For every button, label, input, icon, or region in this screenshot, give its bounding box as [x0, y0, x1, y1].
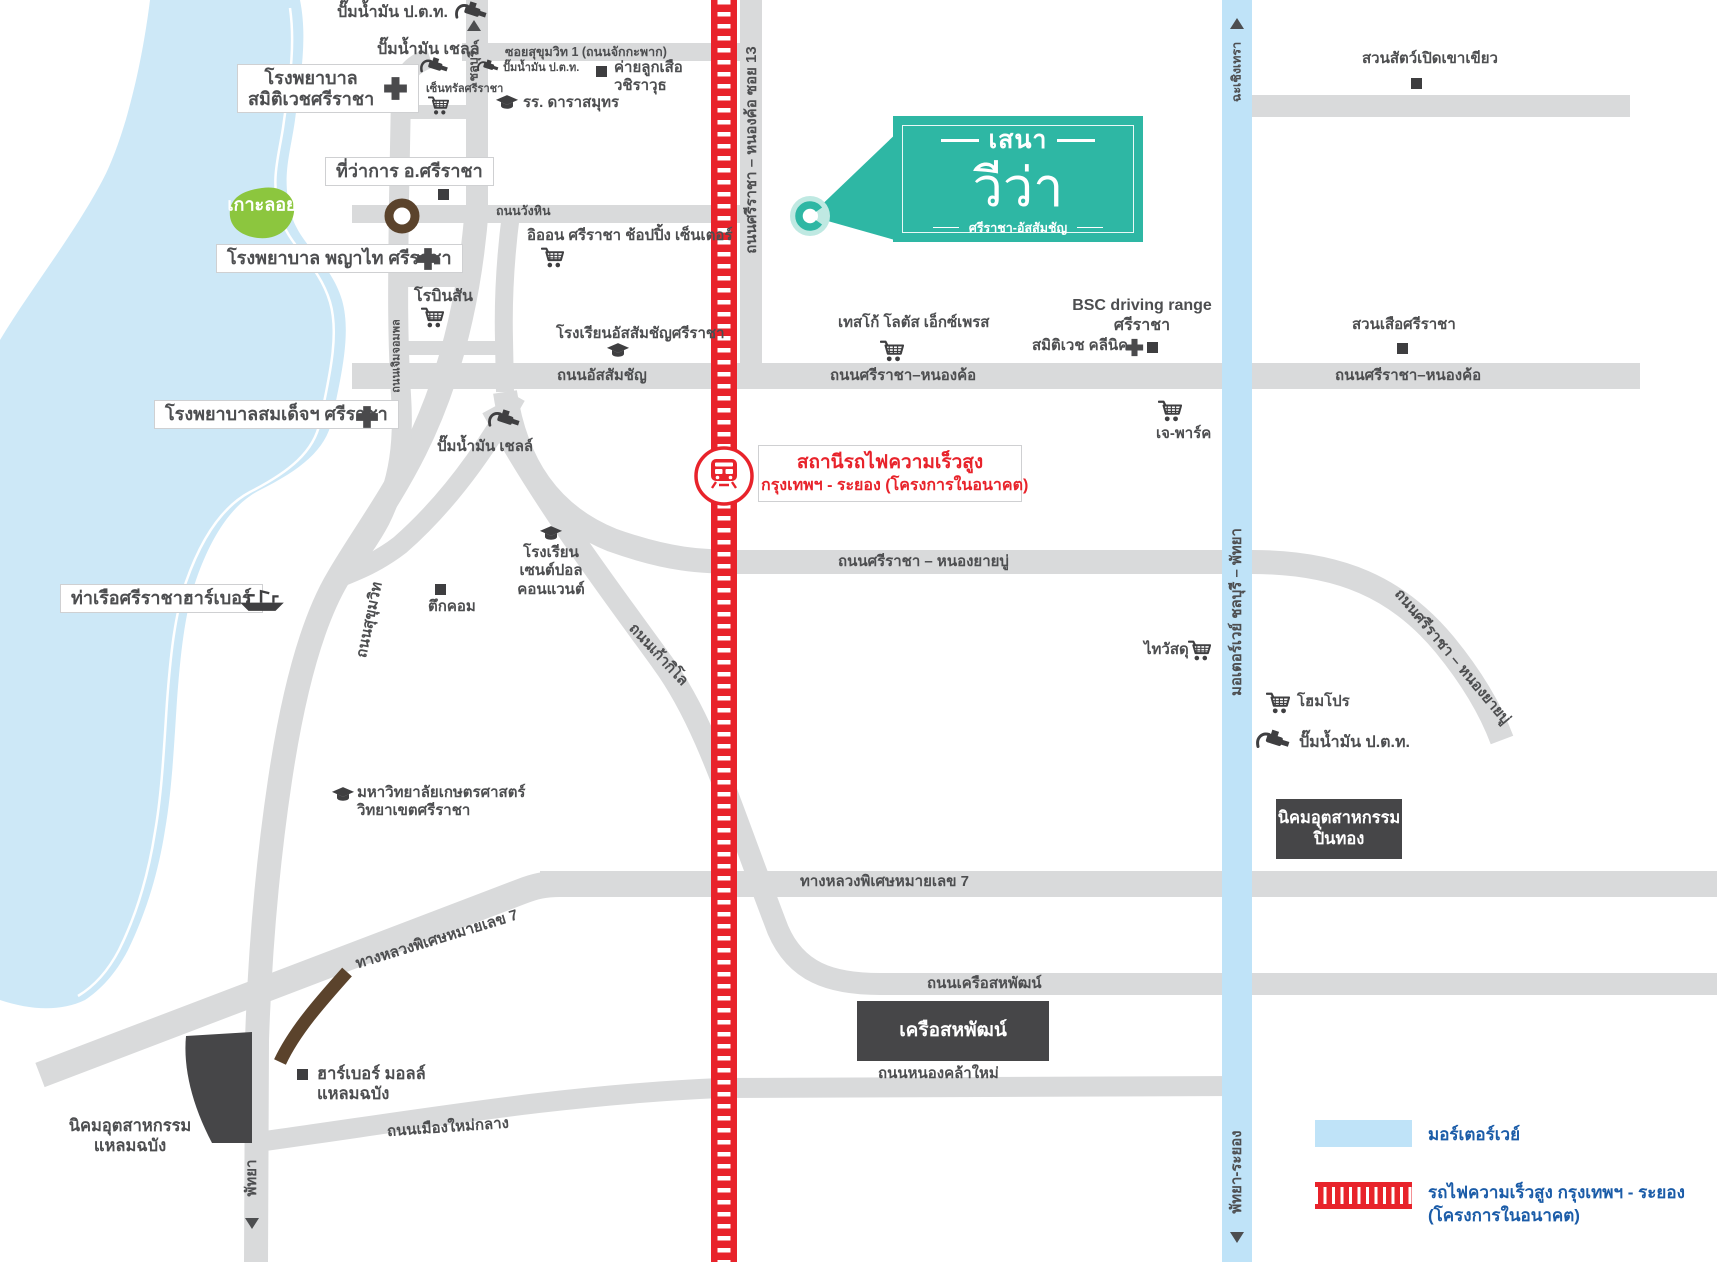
- motorway-band-label: มอเตอร์เวย์ ชลบุรี – พัทยา: [1228, 528, 1246, 696]
- road-sriracha-nongkho-right: ถนนศรีราชา–หนองค้อ: [1335, 367, 1481, 385]
- shopping-cart-icon: [428, 95, 449, 116]
- jpark-label: เจ-พาร์ค: [1156, 425, 1211, 443]
- samitivej-hospital-text: โรงพยาบาล สมิติเวชศรีราชา: [248, 68, 374, 109]
- scout-camp-label: ค่ายลูกเสือ วชิราวุธ: [614, 59, 683, 96]
- marker-square: [1147, 342, 1158, 353]
- logo-brand: เสนา: [989, 120, 1048, 160]
- shopping-cart-icon: [1188, 639, 1211, 662]
- bsc-line1: BSC driving range: [1072, 297, 1212, 314]
- marker-square: [297, 1069, 308, 1080]
- road-nong-yai-bu: ถนนศรีราชา – หนองยายบู่: [838, 553, 1009, 571]
- st-paul-line2: เซนต์ปอล: [519, 562, 582, 579]
- saha-group-box: เครือสหพัฒน์: [857, 1001, 1049, 1061]
- hospital-cross-icon: [1125, 338, 1144, 357]
- legend-hsr-line2: (โครงการในอนาคต): [1428, 1206, 1580, 1225]
- kasetsart-label: มหาวิทยาลัยเกษตรศาสตร์ วิทยาเขตศรีราชา: [357, 784, 526, 821]
- samitivej-line2: สมิติเวชศรีราชา: [248, 89, 374, 109]
- khao-kheow-zoo-label: สวนสัตว์เปิดเขาเขียว: [1362, 50, 1498, 68]
- pier-ship-icon: [238, 587, 286, 614]
- road-khrue-sahapat: ถนนเครือสหพัฒน์: [927, 975, 1042, 993]
- samitivej-hospital-box: โรงพยาบาล สมิติเวชศรีราชา: [237, 64, 419, 113]
- sea-water: [0, 0, 346, 1008]
- direction-pattaya: พัทยา: [243, 1160, 261, 1197]
- school-cap-icon: [539, 525, 563, 542]
- aeon-label: อิออน ศรีราชา ช้อปปิ้ง เซ็นเตอร์: [527, 227, 733, 245]
- hospital-cross-icon: [355, 405, 379, 429]
- district-office-text: ที่ว่าการ อ.ศรีราชา: [336, 161, 483, 182]
- school-cap-icon: [495, 94, 519, 111]
- hsr-line: [711, 0, 737, 1262]
- harbor-mall-label: ฮาร์เบอร์ มอลล์ แหลมฉบัง: [317, 1064, 426, 1104]
- fuel-nozzle-icon: [420, 57, 450, 77]
- legend-hsr-label: รถไฟความเร็วสูง กรุงเทพฯ - ระยอง (โครงกา…: [1428, 1182, 1685, 1228]
- hsr-station-label: สถานีรถไฟความเร็วสูง กรุงเทพฯ - ระยอง (โ…: [758, 445, 1022, 502]
- scout-camp-line2: วชิราวุธ: [614, 77, 667, 94]
- fuel-nozzle-icon: [477, 59, 500, 75]
- school-cap-icon: [331, 786, 355, 803]
- logo-line: [1057, 139, 1095, 142]
- bsc-label: BSC driving range ศรีราชา: [1058, 296, 1226, 335]
- shopping-cart-icon: [541, 246, 564, 269]
- legend-motorway-swatch: [1315, 1120, 1412, 1147]
- ptt-soi1-label: ปั๊มน้ำมัน ป.ต.ท.: [503, 62, 579, 75]
- legend-hsr-swatch: [1315, 1182, 1412, 1209]
- road-assumption: ถนนอัสสัมชัญ: [557, 367, 647, 385]
- harbor-pier-box: ท่าเรือศรีราชาฮาร์เบอร์: [60, 584, 263, 613]
- pinthong-line1: นิคมอุตสาหกรรม: [1276, 808, 1402, 829]
- samitivej-clinic-label: สมิติเวช คลีนิค: [1032, 337, 1128, 355]
- direction-chachoengsao: ฉะเชิงเทรา: [1229, 42, 1244, 102]
- tesco-label: เทสโก้ โลตัส เอ็กซ์เพรส: [838, 314, 989, 332]
- logo-line: [933, 227, 959, 229]
- road-soi13: ถนนศรีราชา – หนองค้อ ซอย 13: [743, 46, 761, 253]
- hospital-cross-icon: [383, 76, 408, 101]
- fuel-nozzle-icon: [1256, 729, 1292, 754]
- bsc-line2: ศรีราชา: [1114, 317, 1170, 334]
- laem-chabang-line1: นิคมอุตสาหกรรม: [69, 1117, 192, 1135]
- st-paul-line1: โรงเรียน: [523, 544, 579, 561]
- scout-camp-line1: ค่ายลูกเสือ: [614, 59, 683, 76]
- robinson-label: โรบินสัน: [414, 287, 473, 307]
- road-jermjompol: ถนนเจิมจอมพล: [390, 319, 403, 392]
- harbor-mall-line2: แหลมฉบัง: [317, 1085, 389, 1103]
- assumption-school-label: โรงเรียนอัสสัมชัญศรีราชา: [556, 325, 725, 343]
- logo-subtitle: ศรีราชา-อัสสัมชัญ: [969, 218, 1067, 238]
- district-office-box: ที่ว่าการ อ.ศรีราชา: [325, 157, 494, 186]
- samitivej-line1: โรงพยาบาล: [265, 68, 358, 88]
- marker-square: [596, 66, 607, 77]
- shopping-cart-icon: [421, 306, 444, 329]
- arrow-up-icon: [1230, 18, 1244, 29]
- road-soi-sukhumvit1: ซอยสุขุมวิท 1 (ถนนจักกะพาก): [505, 45, 667, 60]
- hospital-cross-icon: [416, 247, 440, 271]
- tiger-zoo-label: สวนเสือศรีราชา: [1352, 316, 1456, 334]
- direction-pattaya-rayong: พัทยา-ระยอง: [1228, 1130, 1246, 1213]
- shopping-cart-icon: [1158, 399, 1182, 423]
- koh-loi-label: เกาะลอย: [227, 190, 296, 219]
- pinthong-estate-box: นิคมอุตสาหกรรม ปิ่นทอง: [1276, 799, 1402, 859]
- shopping-cart-icon: [1266, 691, 1290, 715]
- harbor-pier-text: ท่าเรือศรีราชาฮาร์เบอร์: [71, 588, 252, 609]
- saha-group-text: เครือสหพัฒน์: [857, 1019, 1049, 1043]
- ptt-east-label: ปั๊มน้ำมัน ป.ต.ท.: [1299, 733, 1410, 753]
- laem-chabang-estate-label: นิคมอุตสาหกรรม แหลมฉบัง: [66, 1116, 194, 1156]
- homepro-label: โฮมโปร: [1297, 693, 1350, 711]
- logo-line: [1077, 227, 1103, 229]
- location-map: เกาะลอย ปั๊มน้ำมัน ป.ต.ท. ปั๊มน้ำมัน เชล…: [0, 0, 1717, 1262]
- arrow-down-icon: [1230, 1232, 1244, 1243]
- pinthong-line2: ปิ่นทอง: [1276, 829, 1402, 850]
- laem-chabang-estate-area: [185, 1032, 252, 1143]
- kasetsart-line2: วิทยาเขตศรีราชา: [357, 802, 470, 819]
- project-logo: เสนา วีว่า ศรีราชา-อัสสัมชัญ: [893, 116, 1143, 242]
- road-wang-hin: ถนนวังหิน: [496, 204, 551, 219]
- st-paul-label: โรงเรียน เซนต์ปอล คอนแวนต์: [505, 544, 597, 599]
- shopping-cart-icon: [880, 339, 904, 363]
- ptt-north-text: ปั๊มน้ำมัน ป.ต.ท.: [337, 3, 448, 23]
- road-motorway7: ทางหลวงพิเศษหมายเลข 7: [800, 873, 969, 891]
- thai-watsadu-label: ไทวัสดุ: [1144, 641, 1189, 659]
- legend-motorway-label: มอร์เตอร์เวย์: [1428, 1124, 1520, 1147]
- hsr-station-line2: กรุงเทพฯ - ระยอง (โครงการในอนาคต): [761, 476, 1019, 497]
- logo-name: วีว่า: [973, 161, 1064, 216]
- legend-hsr-line1: รถไฟความเร็วสูง กรุงเทพฯ - ระยอง: [1428, 1183, 1685, 1202]
- laem-chabang-line2: แหลมฉบัง: [94, 1137, 166, 1155]
- marker-square: [435, 584, 446, 595]
- harbor-mall-line1: ฮาร์เบอร์ มอลล์: [317, 1065, 426, 1083]
- arrow-up-icon: [467, 20, 481, 31]
- darasamut-label: รร. ดาราสมุทร: [523, 94, 619, 112]
- marker-square: [1397, 343, 1408, 354]
- hsr-station-line1: สถานีรถไฟความเร็วสูง: [761, 451, 1019, 476]
- school-cap-icon: [606, 342, 630, 359]
- st-paul-line3: คอนแวนต์: [517, 581, 584, 598]
- marker-square: [438, 189, 449, 200]
- road-nong-kla-mai: ถนนหนองคล้าใหม่: [878, 1065, 999, 1083]
- fuel-nozzle-icon: [488, 409, 522, 432]
- roundabout: [389, 203, 415, 229]
- logo-line: [941, 139, 979, 142]
- shell-mid-label: ปั๊มน้ำมัน เชลล์: [437, 438, 533, 456]
- arrow-down-icon: [245, 1218, 259, 1229]
- tukcom-label: ตึกคอม: [428, 598, 476, 616]
- kasetsart-line1: มหาวิทยาลัยเกษตรศาสตร์: [357, 784, 526, 801]
- marker-square: [1411, 78, 1422, 89]
- road-sriracha-nongkho: ถนนศรีราชา–หนองค้อ: [830, 367, 976, 385]
